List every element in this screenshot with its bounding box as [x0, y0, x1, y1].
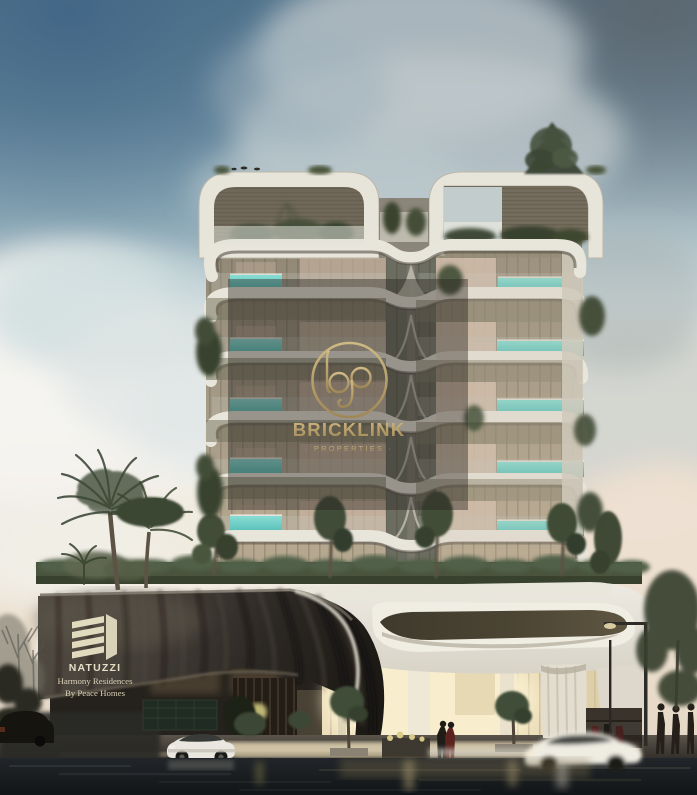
svg-text:· PROPERTIES ·: · PROPERTIES · [305, 444, 393, 453]
svg-text:BRICKLINK: BRICKLINK [293, 419, 406, 440]
svg-text:Harmony Residences: Harmony Residences [58, 676, 134, 686]
svg-text:By Peace Homes: By Peace Homes [65, 688, 126, 698]
svg-text:NATUZZI: NATUZZI [69, 662, 122, 674]
